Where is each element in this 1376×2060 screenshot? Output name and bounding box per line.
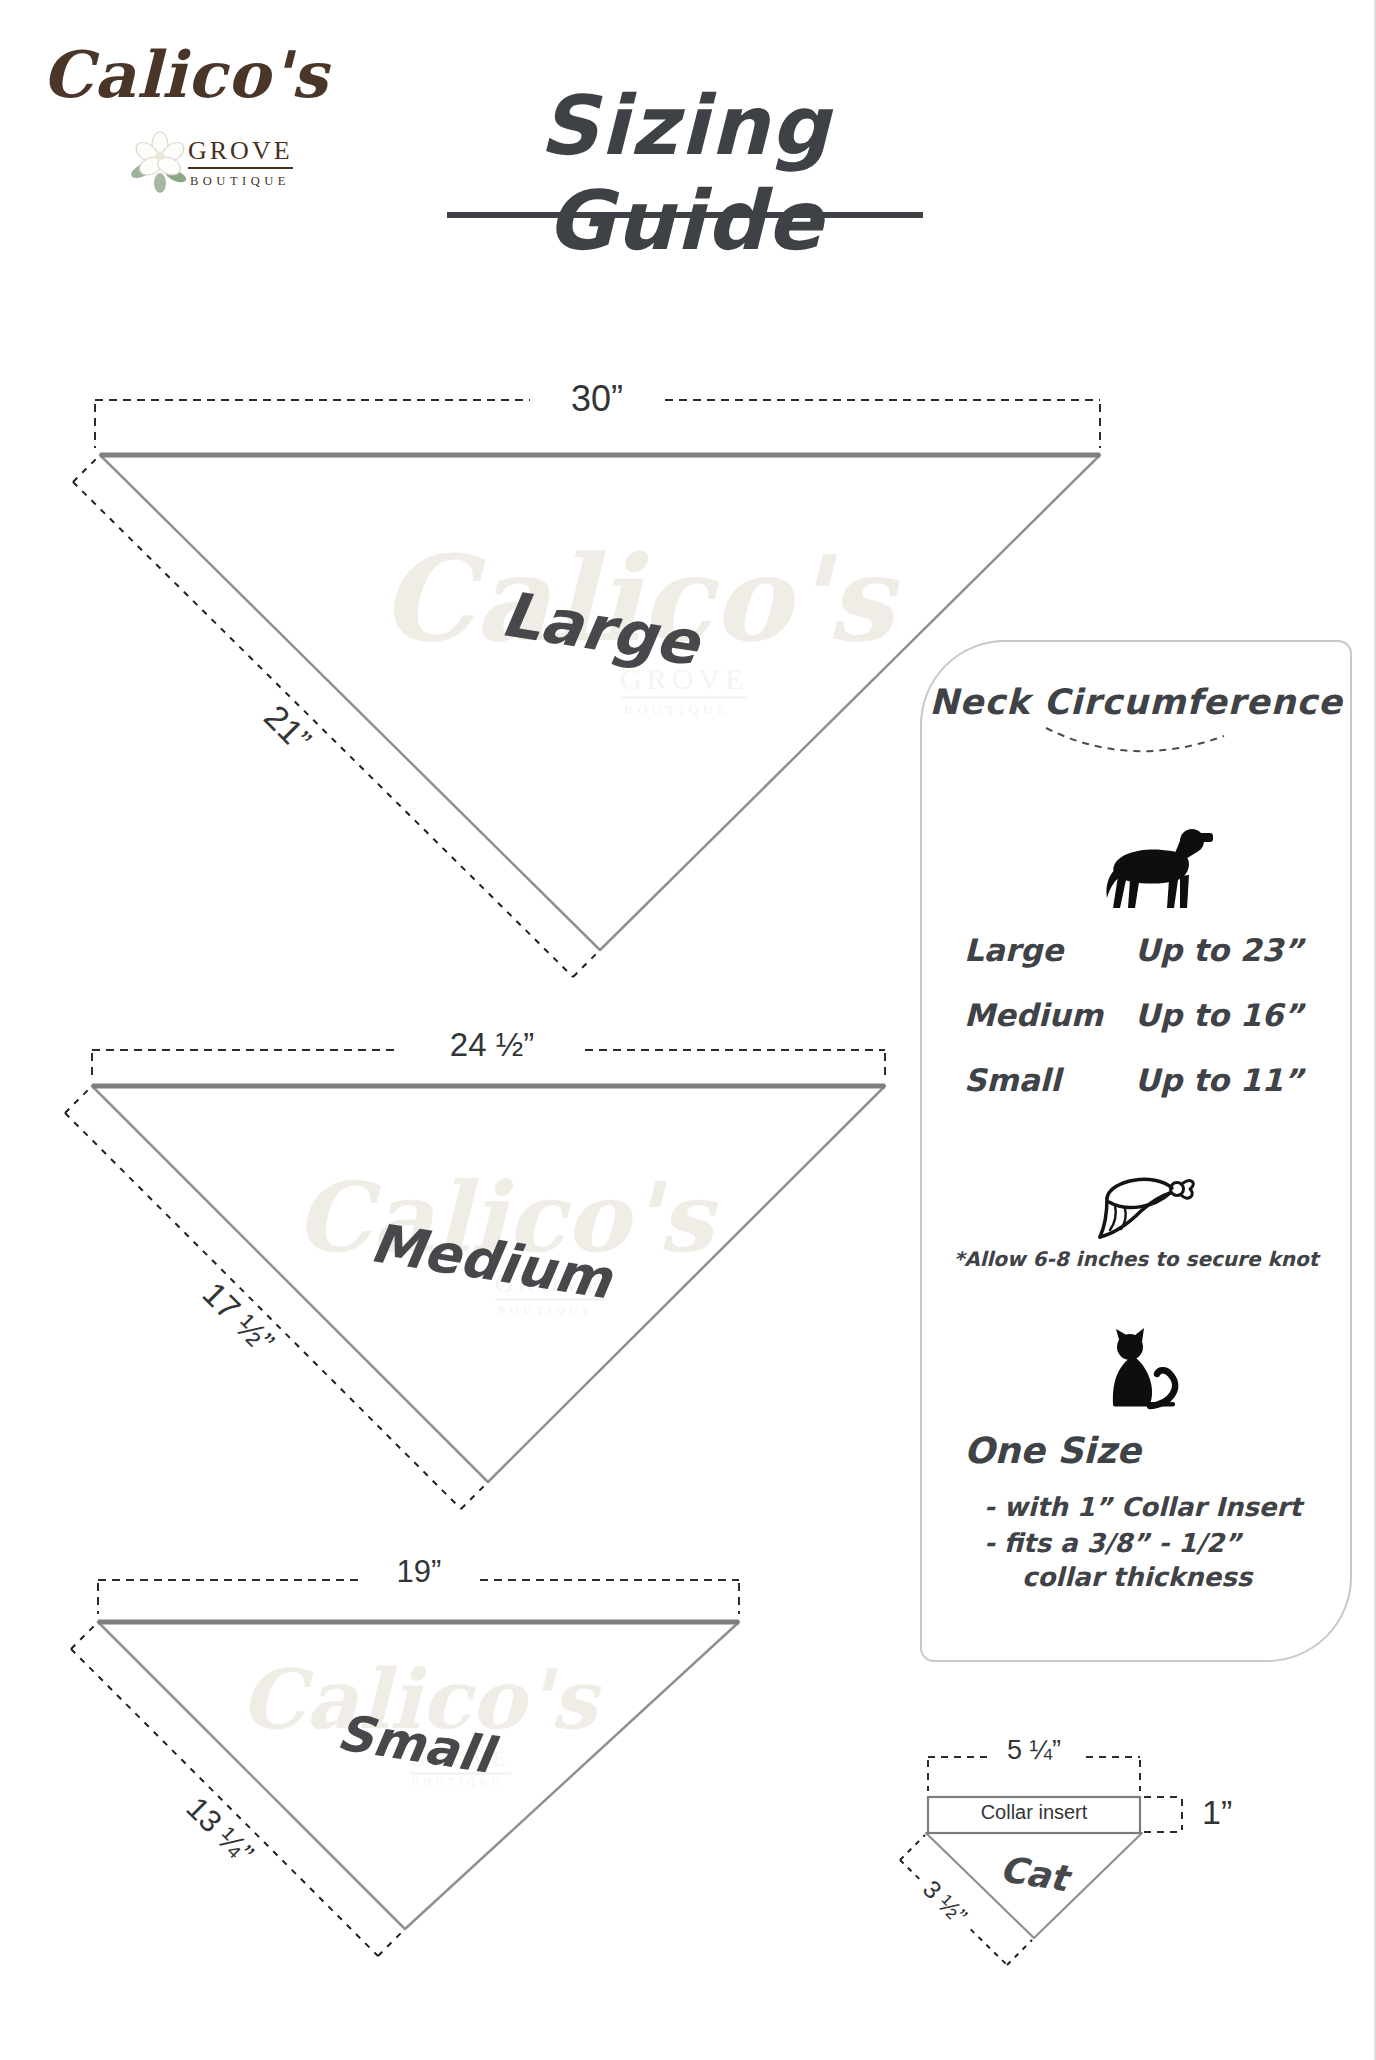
one-size-line2: - fits a 3/8” - 1/2” bbox=[984, 1528, 1241, 1558]
collar-insert-label: Collar insert bbox=[928, 1801, 1140, 1824]
title-underline bbox=[447, 212, 923, 218]
magnolia-flower-icon bbox=[130, 130, 190, 192]
brand-grove: GROVE bbox=[188, 136, 293, 169]
diagram-medium-bandana: Calico's GROVE BOUTIQUE 24 ½” 17 ½” Medi… bbox=[40, 1020, 920, 1540]
bandana-icon bbox=[1094, 1164, 1198, 1248]
one-size-line3: collar thickness bbox=[1022, 1562, 1252, 1592]
dashed-arc-decoration bbox=[1042, 724, 1232, 770]
brand-logo: Calico's GROVE BOUTIQUE bbox=[38, 38, 328, 198]
dog-size-value: Up to 11” bbox=[1135, 1062, 1304, 1098]
cat-insert-height-label: 1” bbox=[1202, 1793, 1232, 1832]
small-top-width-label: 19” bbox=[354, 1554, 484, 1590]
dog-size-value: Up to 23” bbox=[1135, 932, 1304, 968]
one-size-line1: - with 1” Collar Insert bbox=[984, 1492, 1302, 1522]
brand-name: Calico's bbox=[42, 40, 328, 110]
cat-top-width-label: 5 ¼” bbox=[984, 1735, 1084, 1766]
dog-size-value: Up to 16” bbox=[1135, 997, 1304, 1033]
cat-icon bbox=[1100, 1328, 1192, 1412]
dog-size-name: Large bbox=[964, 932, 1124, 968]
medium-top-width-label: 24 ½” bbox=[402, 1026, 582, 1064]
diagram-cat-bandana: 5 ¼” Collar insert 1” Cat 3 ½” bbox=[900, 1735, 1376, 2045]
knot-note: *Allow 6-8 inches to secure knot bbox=[922, 1247, 1350, 1271]
dog-size-name: Small bbox=[964, 1062, 1124, 1098]
dog-size-name: Medium bbox=[964, 997, 1124, 1033]
dog-size-row: Medium Up to 16” bbox=[964, 997, 1324, 1033]
page-title: Sizing Guide bbox=[420, 78, 950, 268]
large-top-width-label: 30” bbox=[527, 378, 667, 420]
cat-bandana-drawing bbox=[900, 1735, 1376, 2045]
watermark-boutique: BOUTIQUE bbox=[624, 702, 730, 718]
panel-heading: Neck Circumference bbox=[922, 682, 1350, 722]
diagram-small-bandana: Calico's GROVE BOUTIQUE 19” 13 ¼” Small bbox=[50, 1550, 770, 1990]
one-size-heading: One Size bbox=[964, 1430, 1141, 1471]
dog-icon bbox=[1100, 824, 1215, 912]
sizing-guide-page: Calico's GROVE BOUTIQUE Sizing Guide bbox=[0, 0, 1376, 2060]
neck-circumference-panel: Neck Circumference Large Up to 23” bbox=[920, 640, 1352, 1662]
dog-size-row: Small Up to 11” bbox=[964, 1062, 1324, 1098]
dog-size-row: Large Up to 23” bbox=[964, 932, 1324, 968]
brand-boutique: BOUTIQUE bbox=[190, 174, 290, 189]
